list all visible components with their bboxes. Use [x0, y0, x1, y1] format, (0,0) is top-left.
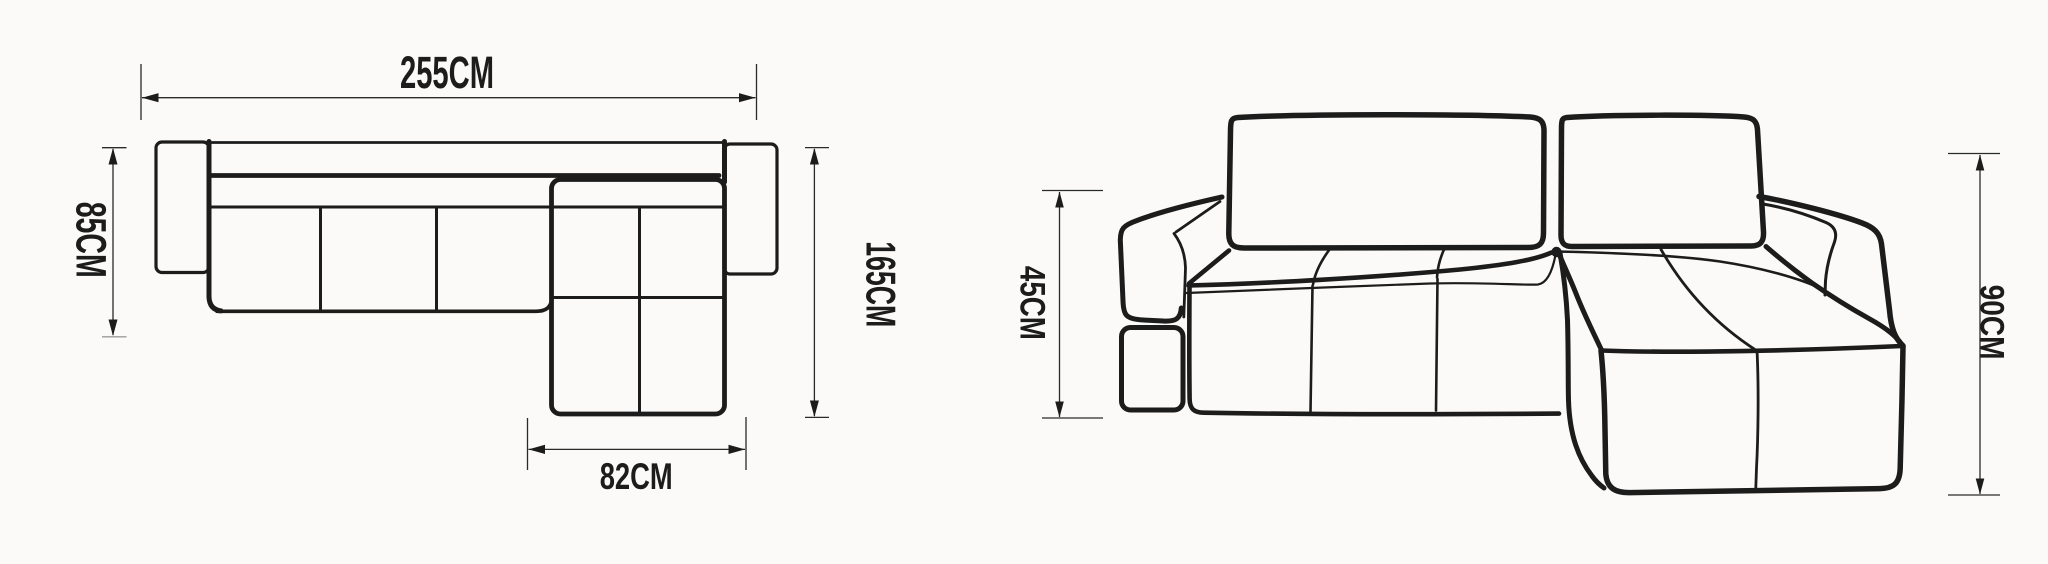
svg-text:85CM: 85CM	[68, 202, 115, 278]
svg-text:255CM: 255CM	[400, 47, 494, 98]
svg-text:90CM: 90CM	[1972, 285, 2010, 360]
svg-text:82CM: 82CM	[600, 456, 673, 497]
svg-text:45CM: 45CM	[1013, 266, 1052, 340]
svg-text:165CM: 165CM	[857, 241, 904, 327]
